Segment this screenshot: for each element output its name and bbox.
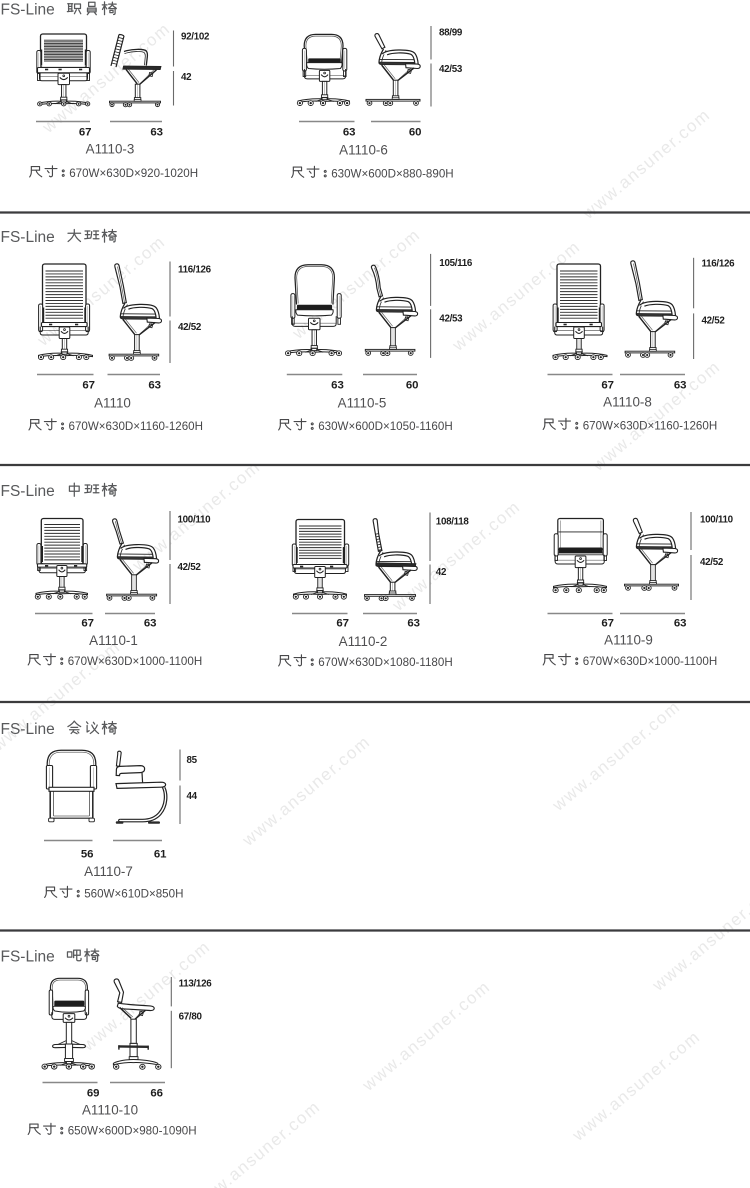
svg-text:63: 63 [148, 380, 161, 392]
svg-text:670W×630D×1080-1180H: 670W×630D×1080-1180H [318, 656, 453, 669]
svg-text:61: 61 [154, 849, 167, 861]
svg-text:650W×600D×980-1090H: 650W×600D×980-1090H [68, 1125, 197, 1138]
svg-text:670W×630D×1160-1260H: 670W×630D×1160-1260H [69, 420, 204, 433]
svg-text:56: 56 [81, 849, 94, 861]
svg-text:67: 67 [79, 127, 92, 139]
svg-text:42: 42 [436, 567, 447, 578]
svg-text:108/118: 108/118 [436, 517, 470, 528]
svg-text:FS-Line: FS-Line [1, 949, 55, 966]
svg-text:88/99: 88/99 [439, 27, 463, 38]
svg-text:44: 44 [187, 791, 198, 802]
svg-text:42/53: 42/53 [439, 64, 463, 75]
svg-text:67: 67 [601, 618, 614, 630]
svg-text:A1110-7: A1110-7 [84, 864, 133, 879]
svg-text:FS-Line: FS-Line [1, 721, 55, 738]
svg-text:42/52: 42/52 [178, 562, 202, 573]
svg-text:A1110-9: A1110-9 [604, 633, 653, 648]
svg-text:630W×600D×880-890H: 630W×600D×880-890H [331, 168, 453, 181]
svg-text:A1110-5: A1110-5 [338, 396, 387, 411]
svg-text:100/110: 100/110 [178, 515, 212, 526]
svg-text:105/116: 105/116 [439, 258, 473, 269]
svg-text:42/52: 42/52 [702, 315, 726, 326]
svg-text:A1110-3: A1110-3 [86, 142, 135, 157]
svg-text:FS-Line: FS-Line [1, 2, 55, 19]
svg-text:67: 67 [81, 618, 94, 630]
svg-text:60: 60 [406, 380, 419, 392]
svg-text:63: 63 [343, 127, 356, 139]
svg-text:A1110-2: A1110-2 [339, 634, 388, 649]
svg-text:63: 63 [674, 618, 687, 630]
svg-text:67: 67 [601, 380, 614, 392]
svg-text:42/52: 42/52 [178, 322, 202, 333]
svg-text:560W×610D×850H: 560W×610D×850H [84, 888, 183, 901]
svg-text:A1110: A1110 [94, 396, 131, 411]
svg-text:116/126: 116/126 [178, 265, 212, 276]
svg-text:63: 63 [407, 618, 420, 630]
svg-text:66: 66 [150, 1088, 163, 1100]
svg-text:FS-Line: FS-Line [1, 229, 55, 246]
svg-text:670W×630D×1000-1100H: 670W×630D×1000-1100H [68, 655, 203, 668]
svg-text:69: 69 [87, 1088, 100, 1100]
svg-text:60: 60 [409, 127, 422, 139]
svg-text:113/126: 113/126 [179, 979, 213, 990]
svg-text:116/126: 116/126 [702, 258, 736, 269]
svg-text:A1110-6: A1110-6 [339, 143, 388, 158]
svg-text:630W×600D×1050-1160H: 630W×600D×1050-1160H [318, 420, 453, 433]
svg-text:A1110-1: A1110-1 [89, 633, 138, 648]
svg-text:100/110: 100/110 [700, 515, 734, 526]
svg-text:63: 63 [144, 618, 157, 630]
svg-text:FS-Line: FS-Line [1, 483, 55, 500]
svg-text:A1110-10: A1110-10 [82, 1103, 138, 1118]
svg-text:85: 85 [187, 755, 198, 766]
svg-text:670W×630D×1160-1260H: 670W×630D×1160-1260H [583, 420, 718, 433]
svg-text:42: 42 [181, 72, 192, 83]
svg-text:42/52: 42/52 [700, 557, 724, 568]
svg-text:63: 63 [331, 380, 344, 392]
svg-text:A1110-8: A1110-8 [603, 395, 652, 410]
svg-text:92/102: 92/102 [181, 32, 210, 43]
svg-text:670W×630D×1000-1100H: 670W×630D×1000-1100H [583, 655, 718, 668]
svg-text:67/80: 67/80 [179, 1011, 203, 1022]
svg-text:67: 67 [82, 380, 95, 392]
svg-text:63: 63 [674, 380, 687, 392]
svg-text:67: 67 [336, 618, 349, 630]
svg-text:63: 63 [150, 127, 163, 139]
svg-text:670W×630D×920-1020H: 670W×630D×920-1020H [69, 167, 198, 180]
svg-text:42/53: 42/53 [439, 314, 463, 325]
